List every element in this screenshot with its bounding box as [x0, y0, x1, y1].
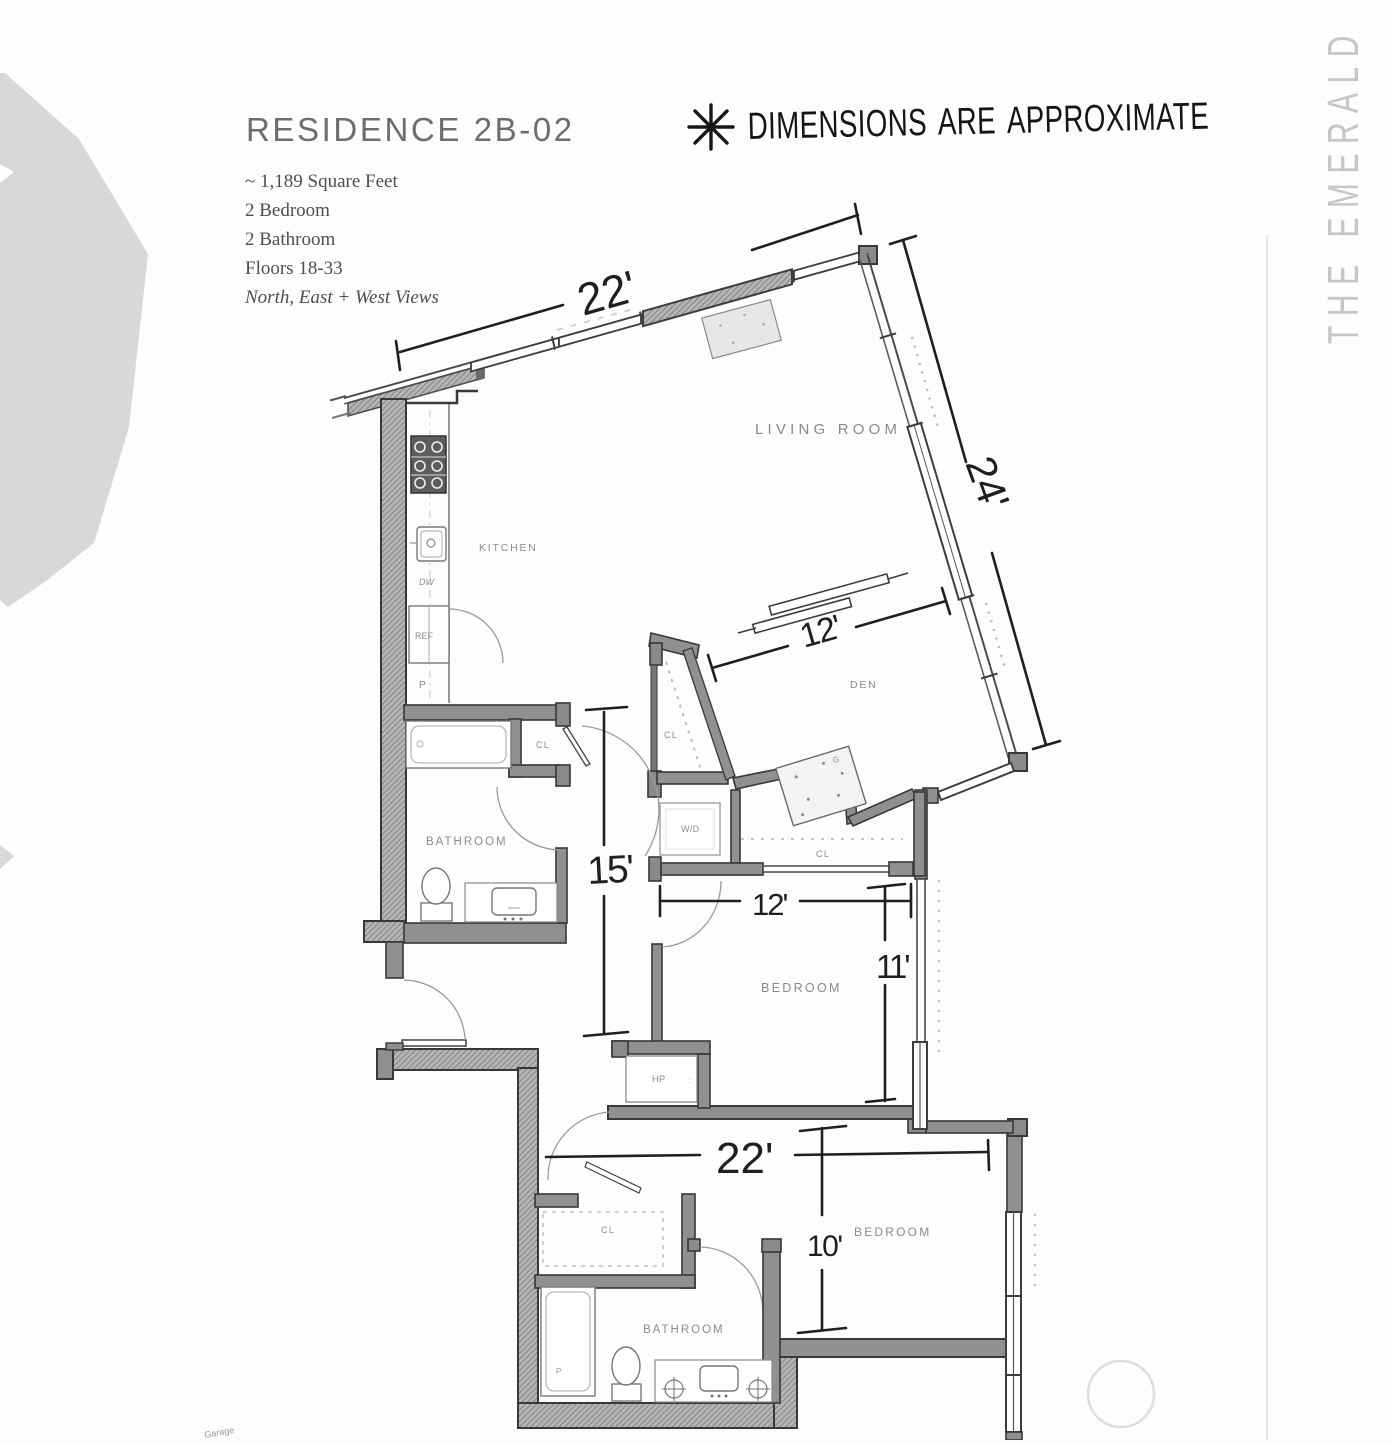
- svg-text:22': 22': [716, 1134, 773, 1183]
- svg-text:KITCHEN: KITCHEN: [479, 542, 538, 554]
- svg-text:BATHROOM: BATHROOM: [643, 1324, 725, 1336]
- svg-text:10': 10': [807, 1230, 842, 1263]
- svg-text:: :: : :: [686, 1078, 693, 1084]
- svg-text:BEDROOM: BEDROOM: [761, 981, 842, 995]
- svg-text:DW: DW: [419, 577, 435, 587]
- svg-text:LIVING ROOM: LIVING ROOM: [755, 421, 901, 438]
- svg-text:REF: REF: [415, 631, 434, 641]
- svg-text:CL: CL: [536, 740, 550, 750]
- svg-text:2 Bathroom: 2 Bathroom: [245, 229, 335, 250]
- svg-text:P: P: [556, 1367, 561, 1376]
- svg-text:CL: CL: [664, 730, 678, 740]
- svg-text:BATHROOM: BATHROOM: [426, 836, 508, 848]
- svg-text:DEN: DEN: [850, 679, 878, 691]
- svg-text:2 Bedroom: 2 Bedroom: [245, 200, 330, 221]
- svg-text:CL: CL: [816, 849, 830, 859]
- svg-text:THE EMERALD: THE EMERALD: [1318, 26, 1367, 344]
- svg-text:P: P: [419, 680, 426, 691]
- svg-text:15': 15': [586, 848, 634, 893]
- svg-text:RESIDENCE 2B-02: RESIDENCE 2B-02: [246, 111, 575, 148]
- svg-text:CL: CL: [601, 1225, 615, 1235]
- svg-text:~ 1,189 Square Feet: ~ 1,189 Square Feet: [245, 171, 398, 192]
- svg-text:12': 12': [752, 887, 787, 922]
- svg-text:North, East + West Views: North, East + West Views: [244, 287, 439, 308]
- svg-text:W/D: W/D: [681, 824, 700, 834]
- svg-text:Floors 18-33: Floors 18-33: [245, 258, 343, 279]
- svg-text:HP: HP: [652, 1074, 665, 1085]
- svg-text:BEDROOM: BEDROOM: [854, 1225, 931, 1239]
- svg-text:11': 11': [876, 948, 909, 985]
